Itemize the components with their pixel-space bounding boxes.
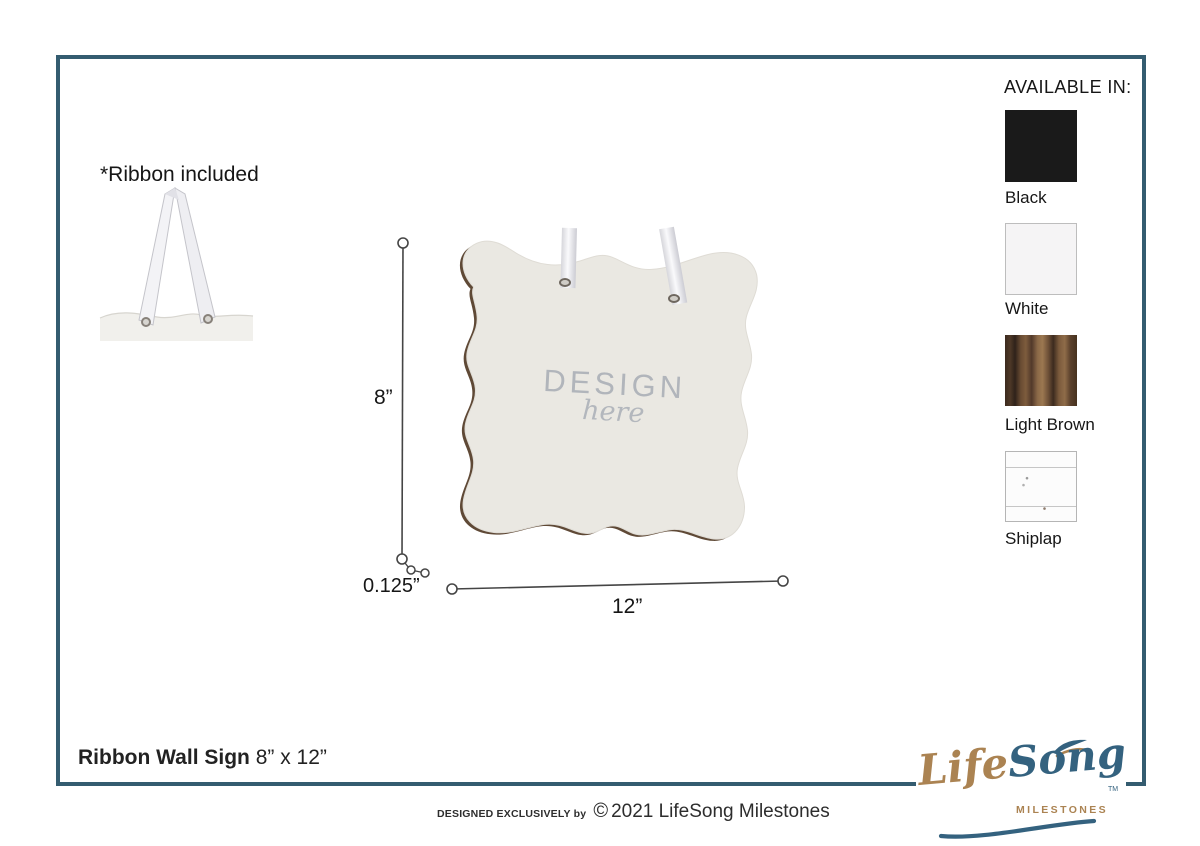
logo-milestones: MILESTONES <box>1016 804 1108 816</box>
swatch-label-white: White <box>1005 299 1048 319</box>
grommet-icon <box>668 294 680 303</box>
thickness-dimension-label: 0.125” <box>363 575 420 597</box>
available-in-heading: AVAILABLE IN: <box>1004 77 1132 98</box>
product-spec-sheet: *Ribbon included DESIGN here <box>0 0 1200 846</box>
width-dimension-line <box>452 581 783 589</box>
logo-song: Song <box>1006 728 1128 787</box>
swatch-light-brown <box>1005 335 1077 406</box>
lifesong-logo: LifeSong TM MILESTONES <box>916 734 1126 846</box>
logo-tm: TM <box>1108 786 1118 793</box>
swatch-label-black: Black <box>1005 188 1047 208</box>
copyright-icon: © <box>593 800 608 823</box>
credit-company: 2021 LifeSong Milestones <box>611 801 830 823</box>
sign-edge-band <box>100 313 253 341</box>
swatch-black <box>1005 110 1077 182</box>
grommet-icon <box>204 315 212 323</box>
swatch-white <box>1005 223 1077 295</box>
ribbon-leg-left <box>139 188 175 325</box>
swatch-label-light-brown: Light Brown <box>1005 415 1095 435</box>
logo-life: Life <box>916 738 1010 795</box>
grommet-icon <box>142 318 150 326</box>
swoosh-underline-icon <box>938 818 1098 842</box>
product-title: Ribbon Wall Sign 8” x 12” <box>78 746 327 770</box>
swatch-shiplap <box>1005 451 1077 522</box>
dimension-annotations: 8” 0.125” 12” <box>355 225 805 625</box>
credit-designed-by: DESIGNED EXCLUSIVELY by <box>437 808 586 820</box>
swatch-label-shiplap: Shiplap <box>1005 529 1062 549</box>
product-size: 8” x 12” <box>250 746 327 769</box>
logo-script: LifeSong <box>916 728 1128 795</box>
product-name: Ribbon Wall Sign <box>78 746 250 769</box>
ribbon-included-note: *Ribbon included <box>100 163 259 187</box>
width-dimension-label: 12” <box>612 595 642 618</box>
grommet-icon <box>559 278 571 287</box>
credit-line: DESIGNED EXCLUSIVELY by © 2021 LifeSong … <box>437 800 777 823</box>
ribbon-leg-right <box>175 188 215 323</box>
ribbon-detail-graphic <box>95 185 260 343</box>
height-dimension-line <box>402 243 403 559</box>
height-dimension-label: 8” <box>374 386 393 409</box>
